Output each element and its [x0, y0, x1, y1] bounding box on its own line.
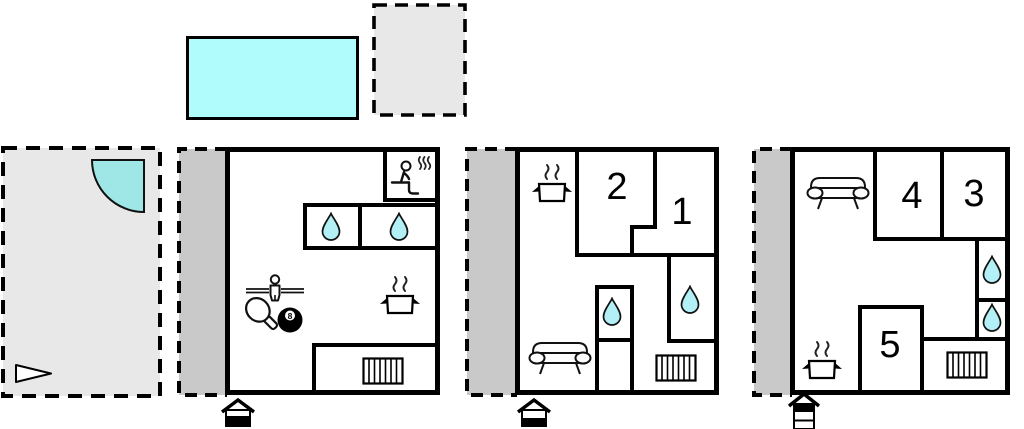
wall: [383, 198, 435, 202]
shower-drop-icon: [388, 212, 410, 242]
wall: [575, 253, 714, 257]
wall: [940, 152, 944, 241]
sauna-icon: [390, 154, 434, 198]
wall: [873, 237, 1005, 241]
wall: [383, 152, 387, 202]
unit3-building: 4 3 5: [790, 147, 1010, 395]
unit2-building: 2 1: [515, 147, 719, 395]
wall: [630, 225, 657, 229]
flag-triangle-icon: [14, 363, 55, 386]
shower-drop-icon: [981, 255, 1003, 285]
kitchen-pot-icon: [378, 275, 422, 321]
foosball-player-icon: [246, 275, 304, 300]
unit1-building: 8: [225, 147, 440, 395]
bedroom-5-label: 5: [868, 323, 912, 367]
wall: [653, 152, 657, 229]
floor-plan-canvas: 8 2 1: [0, 0, 1024, 429]
wall: [575, 152, 579, 257]
wall: [920, 305, 924, 390]
shower-drop-icon: [981, 303, 1003, 333]
wall: [975, 237, 979, 341]
unit1-floor-indicator-icon: [219, 397, 257, 429]
wall: [630, 225, 634, 257]
game-room-icons: 8: [242, 272, 308, 338]
unit3-covered-terrace: [750, 145, 792, 399]
wall: [595, 285, 634, 289]
wall: [858, 305, 862, 390]
bedroom-4-label: 4: [890, 174, 934, 218]
kitchen-pot-icon: [800, 340, 844, 386]
shower-drop-icon: [320, 212, 342, 242]
unit1-covered-terrace: [175, 145, 227, 399]
shower-drop-icon: [601, 297, 623, 327]
unit3-floor-indicator-icon: [785, 392, 823, 429]
wall: [979, 298, 1005, 302]
sofa-icon: [528, 337, 592, 377]
wall: [303, 203, 435, 207]
unit2-covered-terrace: [463, 145, 517, 399]
wall: [312, 343, 435, 347]
shower-drop-icon: [679, 285, 701, 315]
corner-spa-icon: [90, 158, 147, 215]
unit2-floor-indicator-icon: [515, 397, 553, 429]
wall: [358, 203, 362, 250]
wall: [920, 337, 1005, 341]
wall: [858, 305, 924, 309]
billiard-ball-number: 8: [288, 311, 293, 321]
wall: [667, 339, 714, 343]
wall: [303, 203, 307, 250]
swimming-pool: [186, 36, 359, 120]
billiard-ball-icon: 8: [278, 308, 303, 333]
radiator-icon: [655, 354, 697, 382]
wall: [873, 152, 877, 241]
wall: [667, 253, 671, 343]
radiator-icon: [946, 351, 988, 379]
radiator-icon: [362, 357, 404, 385]
wall: [312, 343, 316, 390]
kitchen-pot-icon: [530, 163, 574, 209]
sofa-icon: [806, 172, 870, 212]
bedroom-1-label: 1: [660, 190, 704, 234]
open-terrace: [370, 1, 469, 119]
bedroom-3-label: 3: [952, 172, 996, 216]
wall: [303, 246, 435, 250]
bedroom-2-label: 2: [595, 165, 639, 209]
wall: [595, 338, 634, 342]
